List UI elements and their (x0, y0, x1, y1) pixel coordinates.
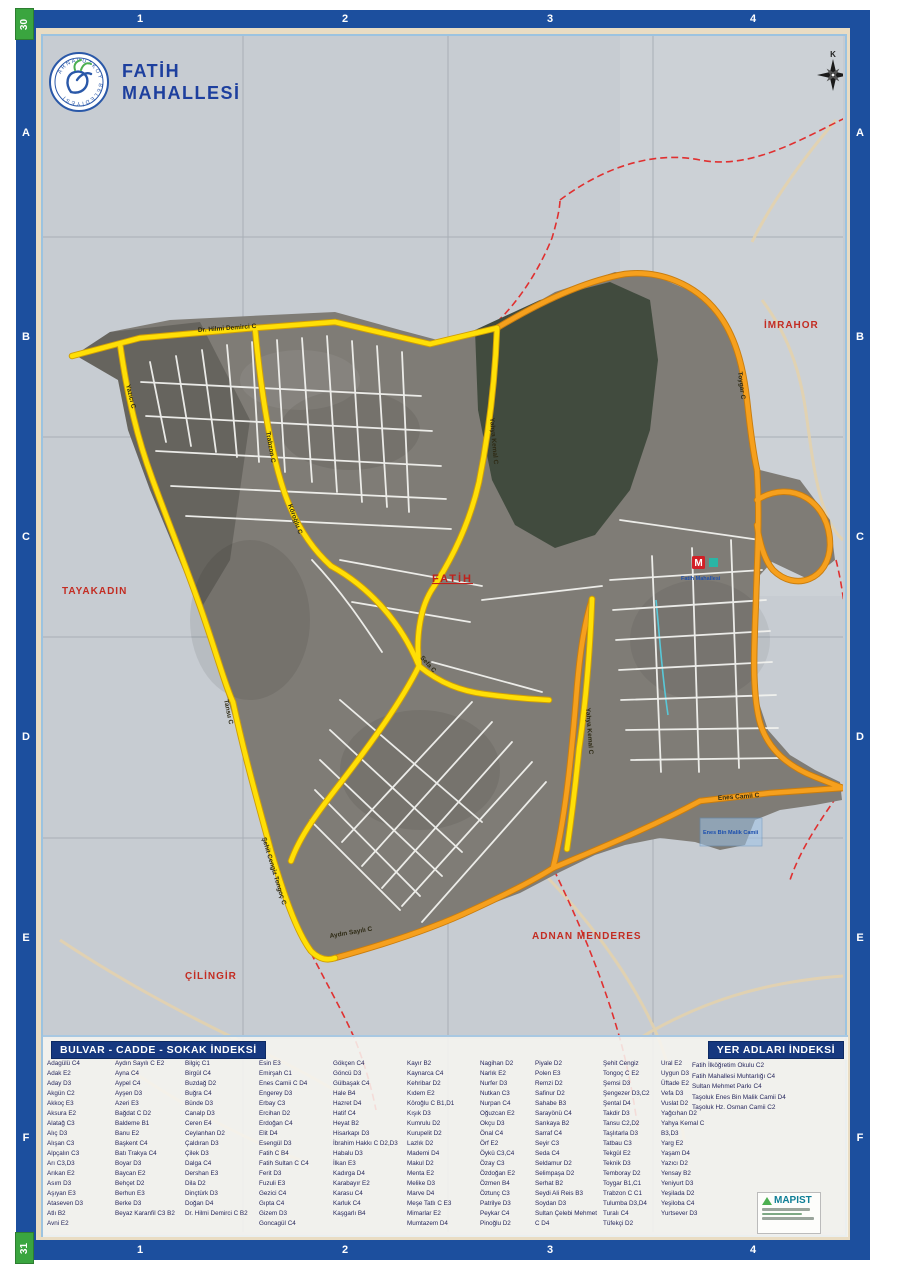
street-index-entry: Soydan D3 (535, 1199, 597, 1209)
street-index-entry: Şengezer D3,C2 (603, 1089, 657, 1099)
area-label: ADNAN MENDERES (532, 931, 642, 942)
grid-col-label: 2 (342, 13, 348, 25)
street-index-entry: Kehribar D2 (407, 1079, 473, 1089)
street-index-entry: Sarıkaya B2 (535, 1119, 597, 1129)
grid-row-label: A (856, 127, 864, 139)
mapist-fineprint-line (762, 1208, 810, 1211)
grid-col-label: 2 (342, 1244, 348, 1256)
street-index-entry: Erbay C3 (259, 1099, 325, 1109)
street-index-entry: Tulumba D3,D4 (603, 1199, 657, 1209)
street-index-entry: Kurupelit D2 (407, 1129, 473, 1139)
street-index-entry: Sahabe B3 (535, 1099, 597, 1109)
street-index-entry: Yeniyurt D3 (661, 1179, 723, 1189)
street-index-entry: Aşıyan E3 (47, 1189, 113, 1199)
street-index-entry: Esengül D3 (259, 1139, 325, 1149)
street-index-entry: Çaldıran D3 (185, 1139, 251, 1149)
street-index-entry: Baldeme B1 (115, 1119, 181, 1129)
mapist-fineprint-line (762, 1213, 802, 1216)
metro-station-label: Fatih Mahallesi (681, 576, 721, 582)
street-index-entry: Kumrulu D2 (407, 1119, 473, 1129)
street-index-entry: Fatih C B4 (259, 1149, 325, 1159)
street-index-column-8: Piyale D2Polen E3Remzi D2Safinur D2Sahab… (535, 1059, 597, 1229)
street-index-entry: Kışık D3 (407, 1109, 473, 1119)
street-index-entry: Dalga C4 (185, 1159, 251, 1169)
street-index-entry: Beyaz Karanfil C3 B2 (115, 1209, 181, 1219)
place-index-list: Fatih İlköğretim Okulu C2Fatih Mahallesi… (692, 1061, 844, 1114)
street-index-entry: Aypel C4 (115, 1079, 181, 1089)
grid-bar-left (16, 10, 36, 1260)
street-index-entry: Makul D2 (407, 1159, 473, 1169)
street-index-title: BULVAR - CADDE - SOKAK İNDEKSİ (51, 1041, 266, 1059)
street-index-entry: Meşe Tatlı C E3 (407, 1199, 473, 1209)
page-number: 31 (19, 1242, 30, 1253)
street-index-entry: Heyat B2 (333, 1119, 399, 1129)
street-index-entry: Emirşah C1 (259, 1069, 325, 1079)
grid-row-label: B (856, 331, 864, 343)
street-index-entry: Arıkan E2 (47, 1169, 113, 1179)
street-index-entry: Goncagül C4 (259, 1219, 325, 1229)
street-index-entry: Hatif C4 (333, 1109, 399, 1119)
street-index-entry: Avni E2 (47, 1219, 113, 1229)
street-index-entry: Yaşam D4 (661, 1149, 723, 1159)
street-index-entry: Köroğlu C B1,D1 (407, 1099, 473, 1109)
street-index-entry: Yahya Kemal C B3,D3 (661, 1119, 723, 1139)
street-index-entry: Dershan E3 (185, 1169, 251, 1179)
street-index-entry: Teknik D3 (603, 1159, 657, 1169)
street-index-entry: Banu E2 (115, 1129, 181, 1139)
page-title-line1: FATİH (122, 60, 241, 82)
street-index-column-6: Kayır B2Kaynarca C4Kehribar D2Kıdem E2Kö… (407, 1059, 473, 1229)
street-index-entry: Akkoç E3 (47, 1099, 113, 1109)
street-index-entry: Hale B4 (333, 1089, 399, 1099)
street-index-column-1: Adagülü C4Adak E2Aday D3Akgün C2Akkoç E3… (47, 1059, 113, 1229)
street-index-entry: Ceren E4 (185, 1119, 251, 1129)
street-index-entry: Ayşen D3 (115, 1089, 181, 1099)
street-index-entry: Berhun E3 (115, 1189, 181, 1199)
street-index-column-9: Şehit Cengiz Tongoç C E2Şemsi D3Şengezer… (603, 1059, 657, 1229)
mapist-logo-icon (762, 1197, 772, 1205)
street-index-entry: Yensay B2 (661, 1169, 723, 1179)
street-index-entry: Melike D3 (407, 1179, 473, 1189)
street-index-entry: Ayna C4 (115, 1069, 181, 1079)
street-index-entry: Kadırga D4 (333, 1169, 399, 1179)
street-index-entry: İlkan E3 (333, 1159, 399, 1169)
street-index-entry: Gizem D3 (259, 1209, 325, 1219)
street-index-entry: Karluk C4 (333, 1199, 399, 1209)
street-index-entry: Takdir D3 (603, 1109, 657, 1119)
street-index-entry: Kaynarca C4 (407, 1069, 473, 1079)
street-index-entry: Buğra C4 (185, 1089, 251, 1099)
street-index-entry: Sarraf C4 (535, 1129, 597, 1139)
street-index-column-5: Gökçen C4Göncü D3Gülbaşak C4Hale B4Hazre… (333, 1059, 399, 1219)
street-index-entry: Lazlık D2 (407, 1139, 473, 1149)
street-index-entry: Selimpaşa D2 (535, 1169, 597, 1179)
place-index-entry: Sultan Mehmet Parkı C4 (692, 1082, 844, 1093)
street-index-entry: Asım D3 (47, 1179, 113, 1189)
street-index-entry: Doğan D4 (185, 1199, 251, 1209)
street-index-entry: Bünde D3 (185, 1099, 251, 1109)
page-number-tab: 31 (15, 1232, 34, 1264)
street-index-entry: Aydın Sayılı C E2 (115, 1059, 181, 1069)
street-index-entry: Hisarkapı D3 (333, 1129, 399, 1139)
street-index-entry: Fuzuli E3 (259, 1179, 325, 1189)
municipality-logo: ARNAVUTKÖY BELEDİYESİ (48, 51, 110, 113)
mapist-brand: MAPIST (774, 1195, 812, 1206)
grid-row-label: F (857, 1132, 864, 1144)
street-index-entry: Fatih Sultan C C4 (259, 1159, 325, 1169)
street-index-entry: Menta E2 (407, 1169, 473, 1179)
street-index-entry: Hazret D4 (333, 1099, 399, 1109)
page-title: FATİH MAHALLESİ (122, 60, 241, 104)
mapist-credit: MAPIST (757, 1192, 821, 1234)
street-index-entry: Başkent C4 (115, 1139, 181, 1149)
street-index-column-2: Aydın Sayılı C E2Ayna C4Aypel C4Ayşen D3… (115, 1059, 181, 1219)
street-index-entry: Alıç D3 (47, 1129, 113, 1139)
street-index-entry: Canalp D3 (185, 1109, 251, 1119)
metro-icon: M (694, 558, 702, 569)
place-index-entry: Taşoluk Hz. Osman Camii C2 (692, 1103, 844, 1114)
street-index-entry: Ercihan D2 (259, 1109, 325, 1119)
street-index-entry: Arı C3,D3 (47, 1159, 113, 1169)
street-index-entry: Çilek D3 (185, 1149, 251, 1159)
mosque-label: Enes Bin Malik Camii (703, 830, 759, 836)
street-index-entry: Berke D3 (115, 1199, 181, 1209)
grid-row-label: A (22, 127, 30, 139)
street-index-entry: Buzdağ D2 (185, 1079, 251, 1089)
page-number: 30 (19, 18, 30, 29)
area-label: TAYAKADIN (62, 586, 127, 597)
grid-bar-top (16, 10, 870, 28)
area-label-fatih: FATİH (432, 572, 473, 585)
compass-north-label: K (830, 50, 836, 59)
street-index-entry: Kayır B2 (407, 1059, 473, 1069)
street-index-entry: Temboray D2 (603, 1169, 657, 1179)
grid-bar-bottom (16, 1240, 870, 1260)
street-index-entry: Remzi D2 (535, 1079, 597, 1089)
street-index-entry: Seldamur D2 (535, 1159, 597, 1169)
street-index-entry: Behçet D2 (115, 1179, 181, 1189)
street-index-entry: Dila D2 (185, 1179, 251, 1189)
map-sheet: 1 2 3 4 1 2 3 4 A B C D E F A B C D E F … (0, 0, 900, 1280)
grid-row-label: C (856, 531, 864, 543)
street-index-entry: Elit D4 (259, 1129, 325, 1139)
street-index-entry: Yeşiloba C4 (661, 1199, 723, 1209)
mosque-poi: Enes Bin Malik Camii (700, 818, 762, 846)
mapist-fineprint-line (762, 1217, 814, 1220)
street-index-entry: Erdoğan C4 (259, 1119, 325, 1129)
street-index-entry: Mademi D4 (407, 1149, 473, 1159)
grid-col-label: 1 (137, 13, 143, 25)
area-label: İMRAHOR (764, 318, 819, 331)
street-index-entry: Yarg E2 (661, 1139, 723, 1149)
street-index-entry: Şehit Cengiz Tongoç C E2 (603, 1059, 657, 1079)
street-index-entry: Azeri E3 (115, 1099, 181, 1109)
street-index-entry: Safinur D2 (535, 1089, 597, 1099)
grid-col-label: 1 (137, 1244, 143, 1256)
street-index-entry: Yazıcı D2 (661, 1159, 723, 1169)
place-index-entry: Taşoluk Enes Bin Malik Camii D4 (692, 1093, 844, 1104)
street-index-entry: Alpçalın C3 (47, 1149, 113, 1159)
street-index-entry: Dinçtürk D3 (185, 1189, 251, 1199)
street-index-entry: Bilgiç C1 (185, 1059, 251, 1069)
street-index-entry: Serhat B2 (535, 1179, 597, 1189)
street-index-entry: Mumtazem D4 (407, 1219, 473, 1229)
index-panel: BULVAR - CADDE - SOKAK İNDEKSİ YER ADLAR… (43, 1035, 848, 1237)
street-index-entry: Seydi Ali Reis B3 (535, 1189, 597, 1199)
street-index-entry: Tansu C2,D2 (603, 1119, 657, 1129)
street-index-entry: Akgün C2 (47, 1089, 113, 1099)
grid-col-label: 3 (547, 13, 553, 25)
street-index-entry: Şemsi D3 (603, 1079, 657, 1089)
place-index-entry: Fatih Mahallesi Muhtarlığı C4 (692, 1072, 844, 1083)
street-index-entry: Aksura E2 (47, 1109, 113, 1119)
street-index-entry: Seyir C3 (535, 1139, 597, 1149)
street-index-entry: Alatağ C3 (47, 1119, 113, 1129)
grid-col-label: 4 (750, 1244, 756, 1256)
street-index-entry: Enes Camii C D4 (259, 1079, 325, 1089)
street-index-entry: Adagülü C4 (47, 1059, 113, 1069)
street-index-entry: Dr. Hilmi Demirci C B2 (185, 1209, 251, 1219)
street-index-entry: Piyale D2 (535, 1059, 597, 1069)
street-index-entry: Karabayır E2 (333, 1179, 399, 1189)
street-index-column-4: Esin E3Emirşah C1Enes Camii C D4Engerey … (259, 1059, 325, 1229)
street-index-entry: Polen E3 (535, 1069, 597, 1079)
grid-row-label: E (22, 932, 29, 944)
street-index-entry: Tatbau C3 (603, 1139, 657, 1149)
street-index-entry: Bağdat C D2 (115, 1109, 181, 1119)
street-index-entry: Ataseven D3 (47, 1199, 113, 1209)
place-index-title: YER ADLARI İNDEKSİ (708, 1041, 844, 1059)
street-index-entry: Engerey D3 (259, 1089, 325, 1099)
street-index-entry: Trabzon C C1 (603, 1189, 657, 1199)
street-index-column-3: Bilgiç C1Birgül C4Buzdağ D2Buğra C4Bünde… (185, 1059, 251, 1219)
street-index-entry: Mimarlar E2 (407, 1209, 473, 1219)
street-index-entry: Alışan C3 (47, 1139, 113, 1149)
street-index-entry: Toygar B1,C1 (603, 1179, 657, 1189)
place-index-entry: Fatih İlköğretim Okulu C2 (692, 1061, 844, 1072)
street-index-entry: Habalu D3 (333, 1149, 399, 1159)
street-index-entry: İbrahim Hakkı C D2,D3 (333, 1139, 399, 1149)
grid-row-label: B (22, 331, 30, 343)
grid-col-label: 4 (750, 13, 756, 25)
grid-col-label: 3 (547, 1244, 553, 1256)
sheet-header: ARNAVUTKÖY BELEDİYESİ FATİH MAHALLESİ (48, 42, 308, 122)
street-index-entry: Yeşilada D2 (661, 1189, 723, 1199)
grid-bar-right (850, 10, 870, 1260)
street-index-entry: Gezici C4 (259, 1189, 325, 1199)
street-index-entry: Turalı C4 (603, 1209, 657, 1219)
street-index-entry: Adak E2 (47, 1069, 113, 1079)
grid-row-label: C (22, 531, 30, 543)
street-index-entry: Taşlıtarla D3 (603, 1129, 657, 1139)
street-index-entry: Baycan E2 (115, 1169, 181, 1179)
street-index-entry: Batı Trakya C4 (115, 1149, 181, 1159)
area-label: ÇİLİNGİR (185, 969, 237, 982)
street-index-entry: Seda C4 (535, 1149, 597, 1159)
street-index-entry: Gülbaşak C4 (333, 1079, 399, 1089)
street-index-entry: Tüfekçi D2 (603, 1219, 657, 1229)
street-index-entry: Karasu C4 (333, 1189, 399, 1199)
street-index-entry: Yurtsever D3 (661, 1209, 723, 1219)
street-index-entry: Ceylanhan D2 (185, 1129, 251, 1139)
street-index-entry: Göncü D3 (333, 1069, 399, 1079)
grid-row-label: D (856, 731, 864, 743)
grid-row-label: E (856, 932, 863, 944)
street-index-entry: Kaşgarlı B4 (333, 1209, 399, 1219)
street-index-entry: Marve D4 (407, 1189, 473, 1199)
street-index-entry: Kıdem E2 (407, 1089, 473, 1099)
street-index-entry: Sultan Çelebi Mehmet C D4 (535, 1209, 597, 1229)
street-index-entry: Tekgül E2 (603, 1149, 657, 1159)
grid-row-label: D (22, 731, 30, 743)
street-index-entry: Birgül C4 (185, 1069, 251, 1079)
street-index-entry: Atlı B2 (47, 1209, 113, 1219)
street-index-entry: Gıpta C4 (259, 1199, 325, 1209)
street-index-entry: Boyar D3 (115, 1159, 181, 1169)
page-title-line2: MAHALLESİ (122, 82, 241, 104)
street-index-entry: Şental D4 (603, 1099, 657, 1109)
grid-row-label: F (23, 1132, 30, 1144)
street-index-entry: Esin E3 (259, 1059, 325, 1069)
street-index-entry: Gökçen C4 (333, 1059, 399, 1069)
street-index-entry: Sarayönü C4 (535, 1109, 597, 1119)
street-index-entry: Aday D3 (47, 1079, 113, 1089)
page-number-tab: 30 (15, 8, 34, 40)
street-index-entry: Ferit D3 (259, 1169, 325, 1179)
